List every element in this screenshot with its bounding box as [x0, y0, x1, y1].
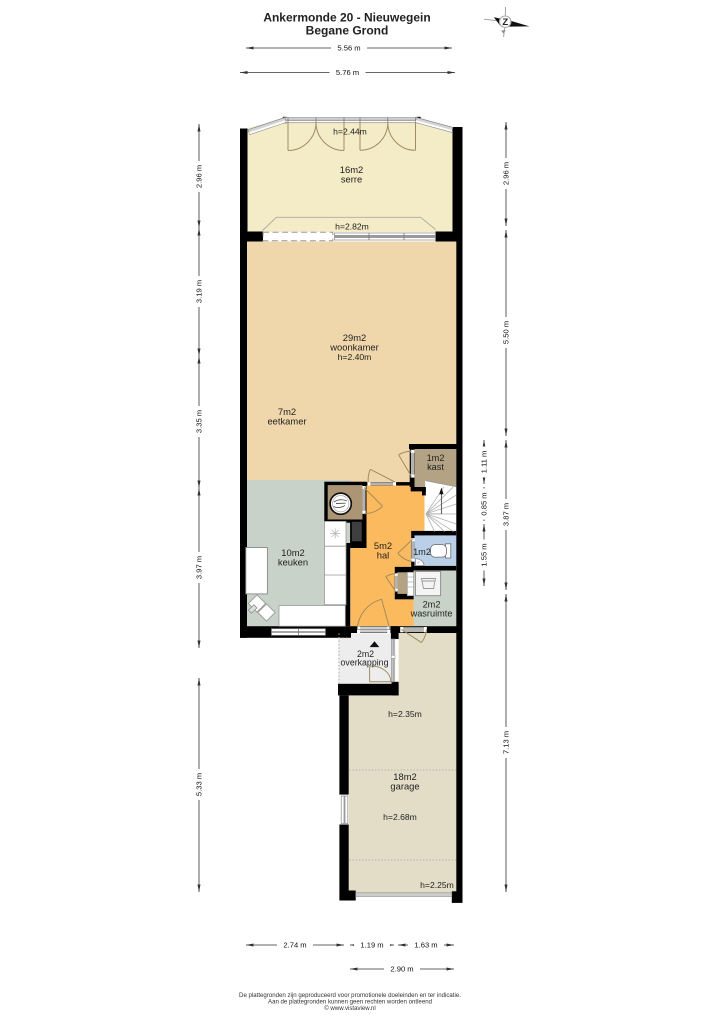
svg-text:h=2.40m: h=2.40m [338, 352, 372, 362]
svg-text:h=2.44m: h=2.44m [333, 127, 367, 137]
svg-text:5.50 m: 5.50 m [502, 321, 511, 344]
svg-text:2.96 m: 2.96 m [502, 162, 511, 185]
svg-text:kast: kast [427, 462, 444, 472]
svg-text:3.97 m: 3.97 m [195, 556, 204, 579]
svg-text:Ankermonde 20 - Nieuwegein: Ankermonde 20 - Nieuwegein [263, 11, 430, 25]
svg-text:2.90 m: 2.90 m [390, 965, 413, 974]
svg-text:serre: serre [341, 174, 362, 185]
svg-text:3.19 m: 3.19 m [195, 280, 204, 303]
svg-text:overkapping: overkapping [341, 657, 389, 667]
svg-text:1m2: 1m2 [413, 547, 431, 557]
svg-text:wasruimte: wasruimte [410, 608, 453, 618]
svg-text:1.11 m: 1.11 m [480, 451, 489, 474]
svg-text:5.33 m: 5.33 m [195, 773, 204, 796]
svg-text:1.55 m: 1.55 m [480, 543, 489, 566]
svg-text:woonkamer: woonkamer [329, 341, 378, 352]
svg-text:5.76 m: 5.76 m [336, 68, 359, 77]
svg-text:garage: garage [390, 781, 419, 792]
svg-text:3.87 m: 3.87 m [502, 503, 511, 526]
svg-text:© www.vistaview.nl: © www.vistaview.nl [324, 1005, 376, 1012]
svg-text:1.19 m: 1.19 m [360, 941, 383, 950]
svg-text:h=2.68m: h=2.68m [383, 812, 417, 822]
svg-text:2.74 m: 2.74 m [283, 941, 306, 950]
svg-text:h=2.35m: h=2.35m [388, 709, 422, 719]
svg-text:0.85 m: 0.85 m [480, 492, 489, 515]
svg-text:2.96 m: 2.96 m [195, 165, 204, 188]
svg-text:Begane Grond: Begane Grond [306, 24, 389, 38]
svg-text:eetkamer: eetkamer [267, 415, 306, 426]
svg-text:h=2.82m: h=2.82m [335, 221, 369, 231]
svg-text:hal: hal [377, 550, 390, 561]
svg-text:h=2.25m: h=2.25m [420, 880, 454, 890]
svg-text:7.13 m: 7.13 m [502, 731, 511, 754]
svg-text:3.35 m: 3.35 m [195, 410, 204, 433]
svg-text:keuken: keuken [278, 556, 308, 567]
svg-text:1.63 m: 1.63 m [414, 941, 437, 950]
svg-text:5.56 m: 5.56 m [337, 44, 360, 53]
svg-text:Z: Z [502, 17, 508, 28]
